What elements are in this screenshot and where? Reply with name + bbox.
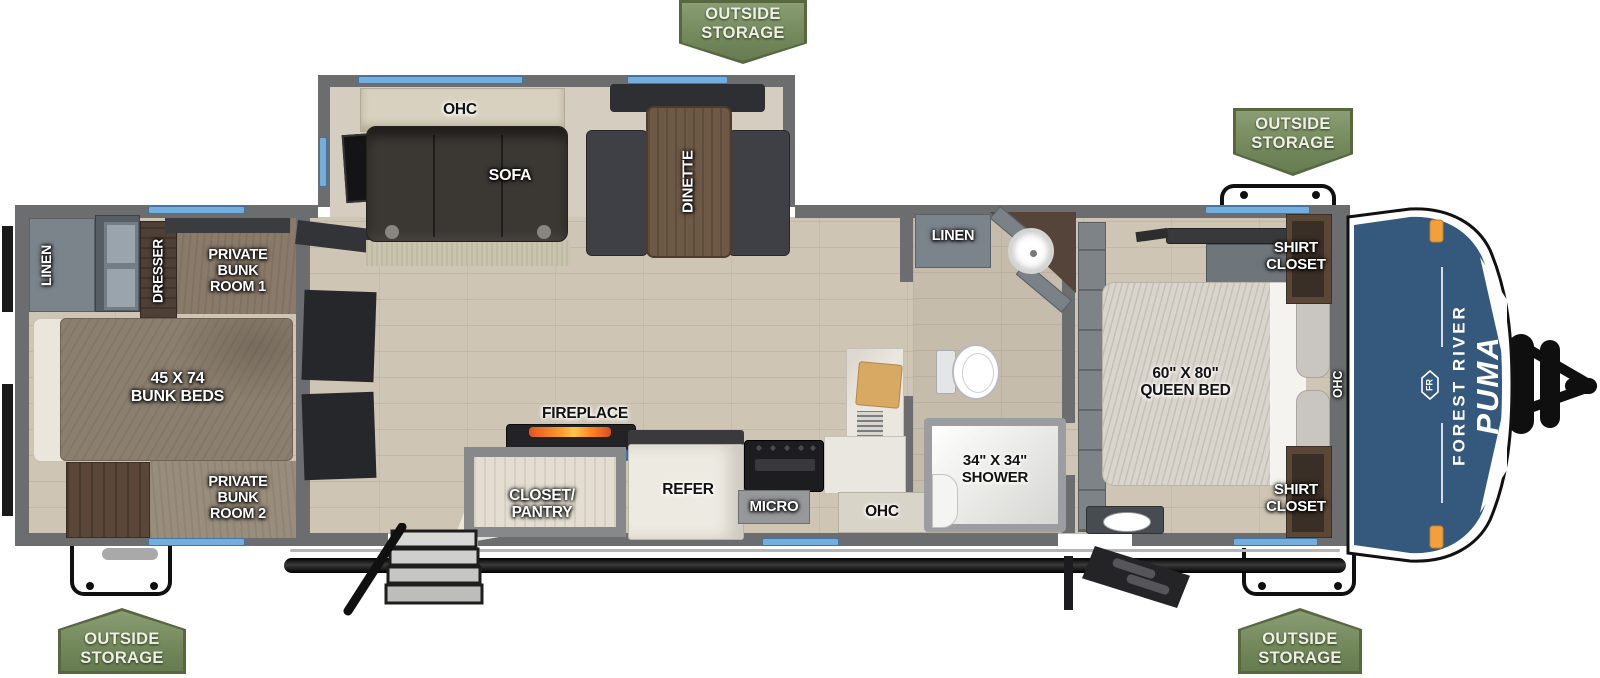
marker-light-bottom — [1430, 526, 1443, 548]
sofa-carpet — [366, 240, 570, 266]
manufacturer-text: FOREST RIVER — [1449, 304, 1468, 466]
kitchen-counter-upper — [846, 348, 904, 450]
window-bunk-bottom — [148, 538, 245, 546]
window-rear-top — [148, 206, 245, 214]
closet-pantry-label: CLOSET/ PANTRY — [482, 478, 602, 530]
fireplace-label: FIREPLACE — [525, 404, 645, 424]
micro-label: MICRO — [740, 494, 808, 520]
dinette-label: DINETTE — [676, 124, 702, 240]
stove-burner-row — [751, 444, 819, 452]
shirt-closet-bottom-label: SHIRT CLOSET — [1248, 474, 1344, 524]
bunk-room-1-label: PRIVATE BUNK ROOM 1 — [183, 234, 293, 308]
sofa-cushion-seam-1 — [433, 135, 435, 237]
pillow-top — [1296, 292, 1330, 378]
sofa-foot-right — [537, 225, 551, 239]
marker-light-top — [1430, 220, 1443, 242]
toilet-seat — [962, 353, 994, 393]
floorplan-canvas: LINEN DRESSER PRIVATE BUNK ROOM 1 45 X 7… — [0, 0, 1600, 678]
shirt-closet-top-label: SHIRT CLOSET — [1248, 232, 1344, 282]
sofa-foot-left — [385, 225, 399, 239]
storage-front-bolt-right — [1334, 582, 1342, 590]
dinette-bench-left — [586, 130, 648, 256]
badge-outside-storage-top-front: OUTSIDE STORAGE — [1233, 108, 1353, 176]
sofa-label: SOFA — [470, 162, 550, 190]
bunk-room-2-label: PRIVATE BUNK ROOM 2 — [183, 462, 293, 534]
badge-outside-storage-bottom-front: OUTSIDE STORAGE — [1238, 608, 1362, 674]
badge-label: OUTSIDE STORAGE — [1233, 108, 1353, 176]
storage-door-shade — [102, 548, 158, 560]
badge-label: OUTSIDE STORAGE — [1238, 608, 1362, 674]
window-kitchen-bottom — [762, 538, 839, 546]
cutting-board — [855, 361, 903, 409]
storage-rear-bolt-left — [86, 582, 94, 590]
bathroom-wall-left-top — [900, 218, 913, 282]
propane-rack-bolt-right — [1312, 191, 1320, 199]
refer-label: REFER — [648, 478, 728, 502]
dresser-label: DRESSER — [147, 226, 169, 316]
badge-label: OUTSIDE STORAGE — [679, 0, 807, 64]
stove-oven-window — [755, 459, 815, 471]
bedroom-ohc-label: OHC — [1328, 358, 1348, 410]
bedroom-entry-step — [1082, 546, 1190, 608]
bedroom-vanity — [1086, 506, 1164, 534]
mirror-panel-bottom — [104, 266, 138, 310]
bathroom-sink — [1008, 228, 1054, 274]
stove — [744, 440, 824, 492]
window-slideout-side — [319, 137, 327, 187]
bathroom-linen-label: LINEN — [919, 222, 987, 250]
bathroom-sink-drain — [1030, 250, 1037, 257]
storage-rear-bolt-right — [150, 582, 158, 590]
bunk-beds-label: 45 X 74 BUNK BEDS — [90, 358, 265, 418]
rear-bumper-lower — [2, 384, 13, 516]
propane-rack-bolt-left — [1240, 191, 1248, 199]
wall-rear — [15, 205, 29, 546]
divider-panel-lower — [302, 392, 377, 480]
window-bedroom-bottom — [1233, 538, 1318, 546]
main-entry-steps — [330, 523, 490, 623]
toilet-bowl — [952, 344, 1000, 400]
bunk-room-1-shelf — [165, 218, 290, 233]
badge-outside-storage-bottom-rear: OUTSIDE STORAGE — [58, 608, 186, 674]
bedroom-vanity-basin — [1103, 512, 1151, 532]
mirror-panel-top — [104, 222, 138, 266]
divider-panel-upper — [301, 290, 376, 382]
sofa-ohc-label: OHC — [400, 96, 520, 124]
window-bedroom-top — [1205, 206, 1310, 214]
queen-bed-label: 60" X 80" QUEEN BED — [1118, 354, 1253, 410]
bunk-room-2-chest — [66, 462, 150, 538]
kitchen-counter-corner — [824, 436, 906, 494]
bedroom-entry-step-support — [1064, 556, 1073, 610]
storage-front-bolt-left — [1258, 582, 1266, 590]
window-slideout-top-left — [358, 76, 523, 84]
fireplace-flame — [529, 427, 611, 437]
rear-bumper-upper — [2, 226, 13, 312]
window-slideout-top-right — [627, 76, 728, 84]
linen-rear-label: LINEN — [36, 224, 58, 306]
logo-monogram: FR — [1424, 379, 1434, 391]
model-text: PUMA — [1470, 335, 1505, 434]
kitchen-ohc-label: OHC — [852, 500, 912, 524]
badge-outside-storage-top-center: OUTSIDE STORAGE — [679, 0, 807, 64]
front-cap: FR FOREST RIVER PUMA — [1330, 195, 1600, 575]
mirror-wardrobe — [95, 215, 140, 312]
shower-label: 34" X 34" SHOWER — [940, 442, 1050, 498]
dinette-bench-right — [728, 130, 790, 256]
badge-label: OUTSIDE STORAGE — [58, 608, 186, 674]
